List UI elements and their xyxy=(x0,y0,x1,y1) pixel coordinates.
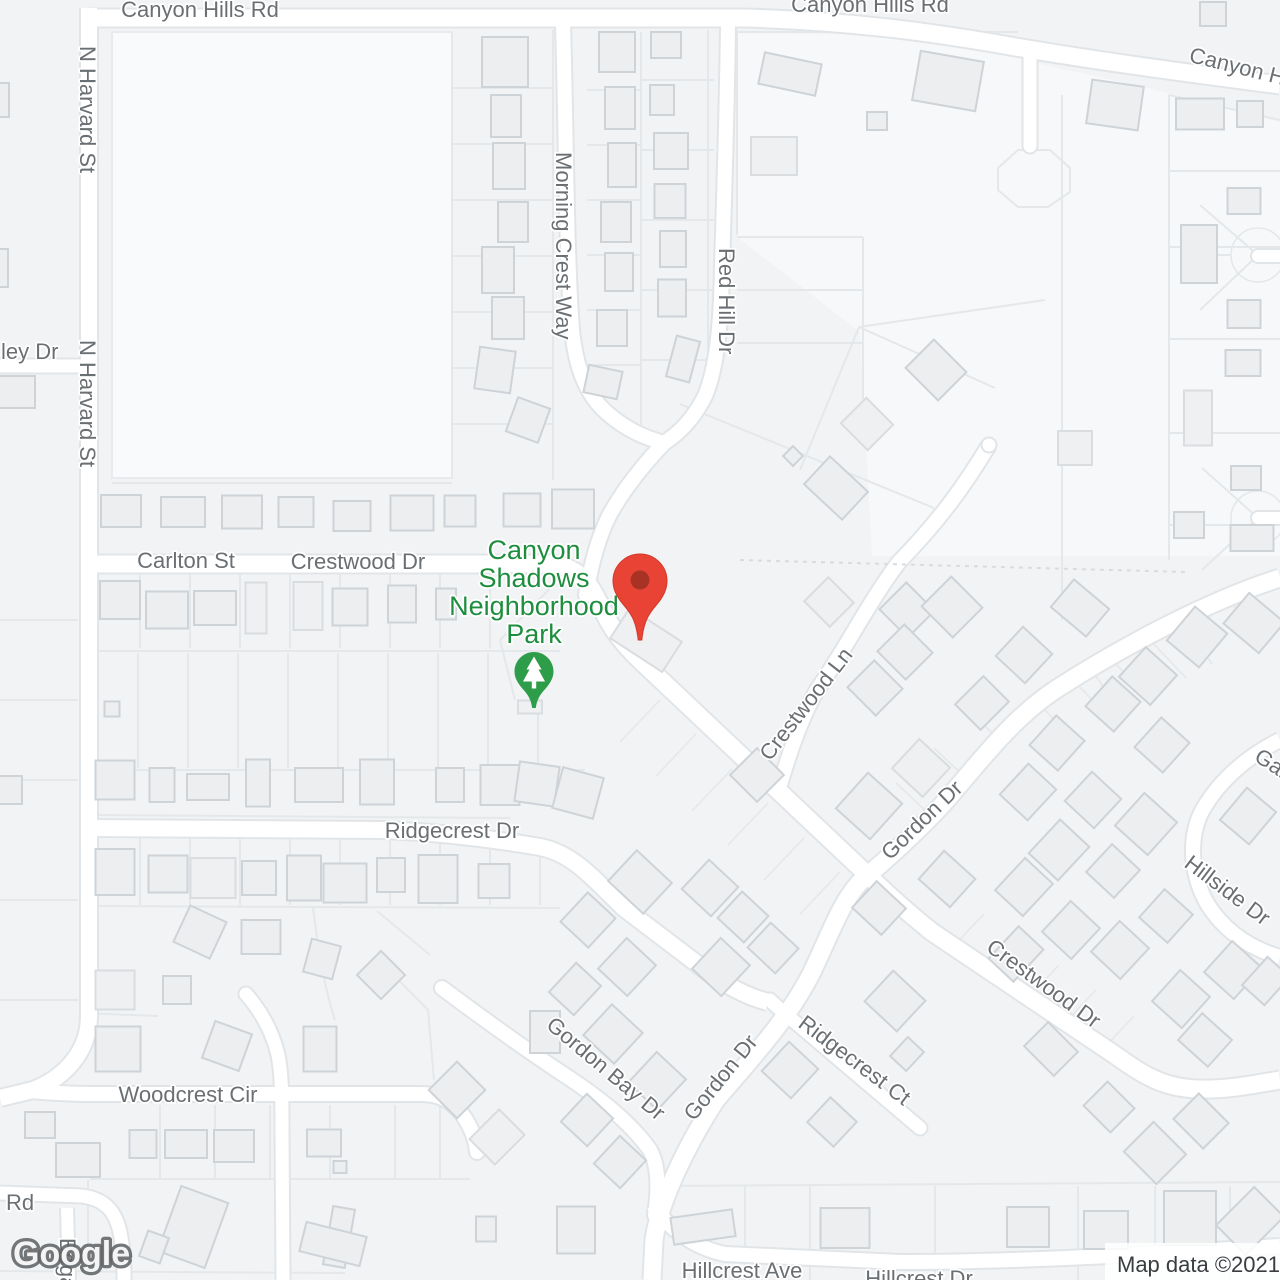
svg-text:Neighborhood: Neighborhood xyxy=(449,591,619,621)
svg-text:N Harvard St: N Harvard St xyxy=(75,46,100,173)
svg-text:Canyon Hills Rd: Canyon Hills Rd xyxy=(121,0,279,22)
svg-text:Park: Park xyxy=(506,619,562,649)
svg-text:Canyon Hills Rd: Canyon Hills Rd xyxy=(791,0,949,17)
svg-text:Canyon: Canyon xyxy=(487,535,580,565)
svg-text:Ridgecrest Dr: Ridgecrest Dr xyxy=(385,818,519,843)
svg-text:Woodcrest Cir: Woodcrest Cir xyxy=(119,1082,258,1107)
svg-text:Rd: Rd xyxy=(6,1190,34,1215)
svg-text:Shadows: Shadows xyxy=(478,563,589,593)
svg-text:Carlton St: Carlton St xyxy=(137,548,235,573)
svg-text:Crestwood Dr: Crestwood Dr xyxy=(291,549,425,574)
svg-text:ley Dr: ley Dr xyxy=(1,339,58,364)
svg-text:N Harvard St: N Harvard St xyxy=(75,340,100,467)
svg-text:Red Hill Dr: Red Hill Dr xyxy=(714,248,739,354)
svg-text:Map data ©2021: Map data ©2021 xyxy=(1117,1252,1280,1277)
svg-text:Hillcrest Dr: Hillcrest Dr xyxy=(865,1266,973,1280)
svg-text:Hillcrest Ave: Hillcrest Ave xyxy=(682,1258,803,1280)
svg-text:Google: Google xyxy=(13,1235,130,1273)
svg-text:Morning Crest Way: Morning Crest Way xyxy=(551,152,576,339)
